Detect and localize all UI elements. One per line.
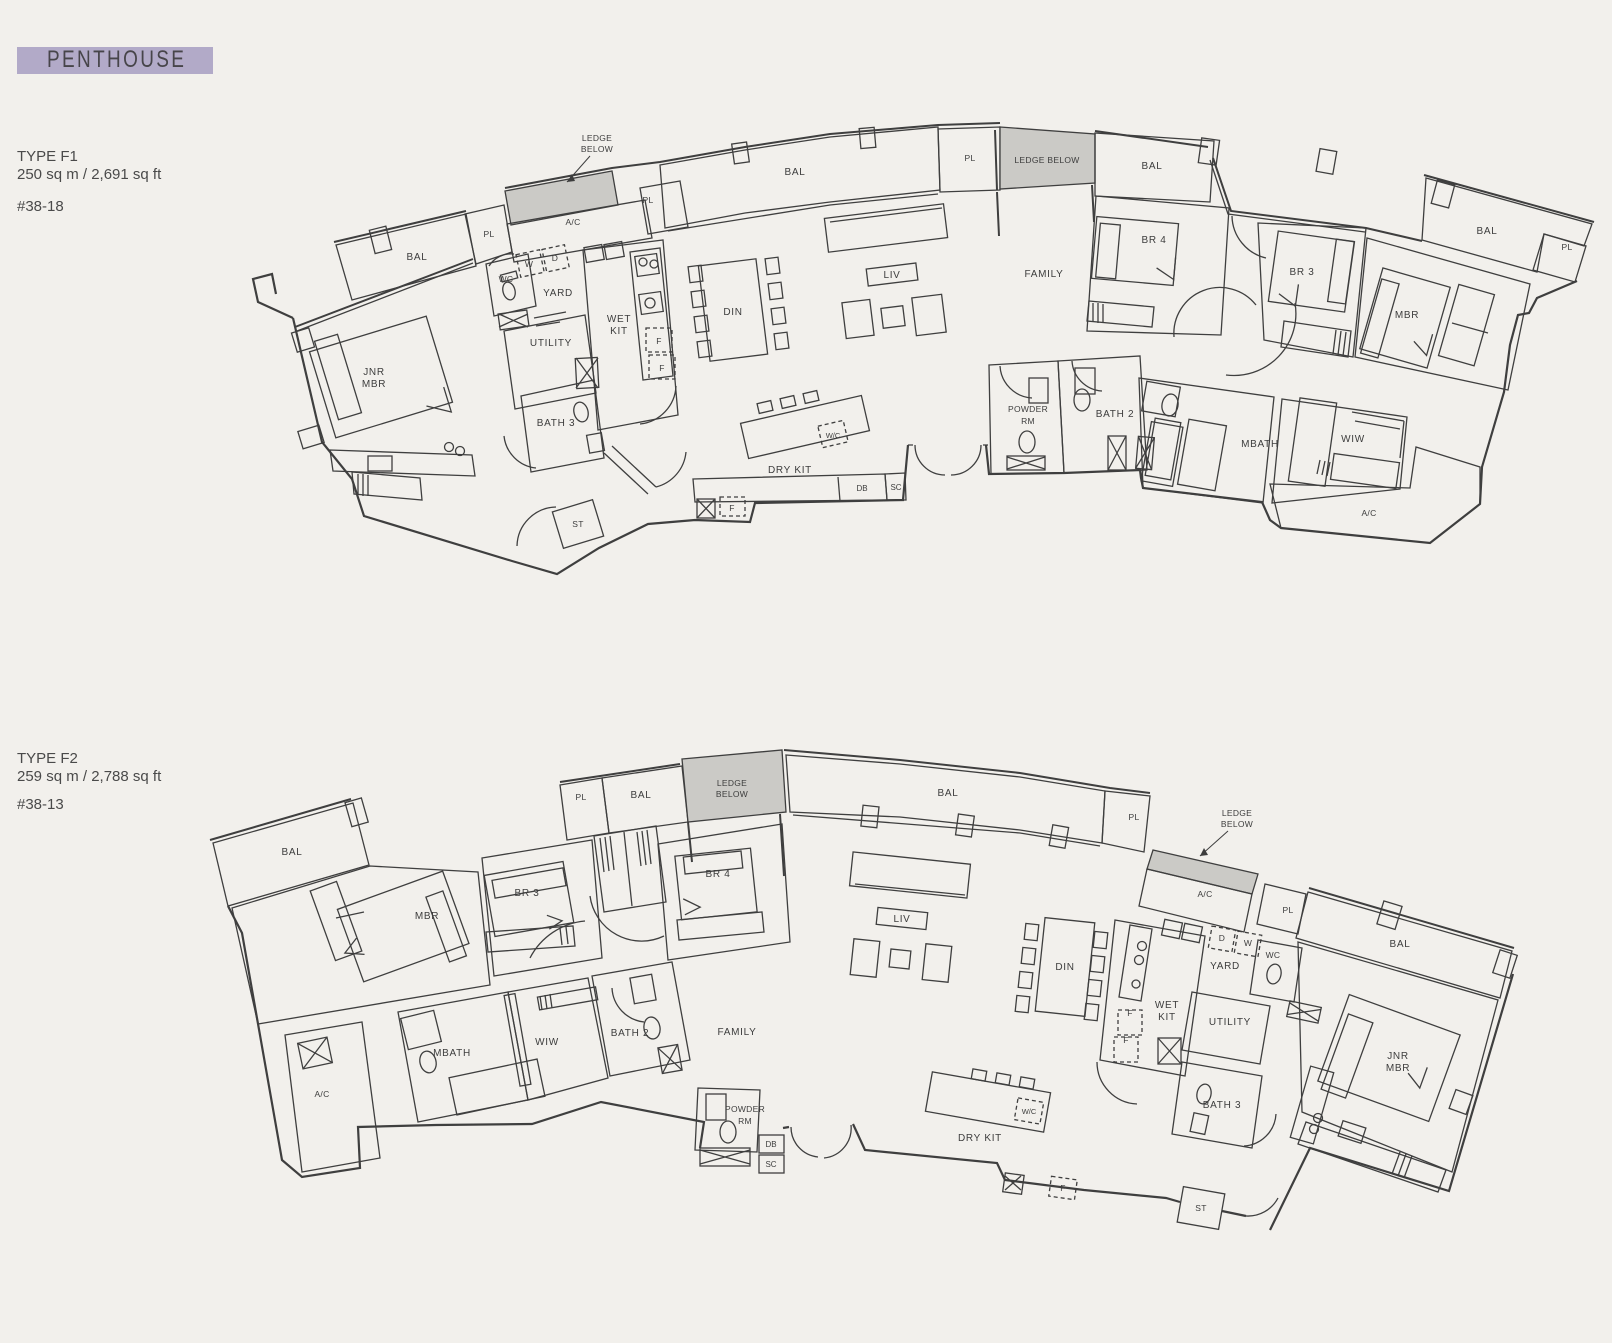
svg-text:UTILITY: UTILITY [1209, 1017, 1251, 1028]
svg-text:BR 3: BR 3 [1289, 267, 1314, 278]
svg-text:PL: PL [1129, 812, 1140, 822]
svg-text:LEDGE: LEDGE [717, 778, 747, 788]
svg-text:BAL: BAL [281, 847, 302, 858]
svg-text:YARD: YARD [1210, 961, 1240, 972]
svg-text:PL: PL [965, 153, 976, 163]
svg-text:LIV: LIV [893, 914, 910, 925]
svg-text:BAL: BAL [937, 788, 958, 799]
svg-text:BR 4: BR 4 [1141, 235, 1166, 246]
svg-text:ST: ST [572, 519, 583, 529]
svg-text:WC: WC [499, 274, 514, 284]
svg-text:BAL: BAL [1389, 939, 1410, 950]
svg-text:D: D [1219, 933, 1225, 943]
svg-text:PL: PL [643, 195, 654, 205]
svg-text:MBR: MBR [1395, 310, 1419, 321]
svg-text:SC: SC [890, 483, 901, 492]
svg-text:W: W [525, 259, 533, 269]
svg-text:PL: PL [1283, 905, 1294, 915]
svg-text:MBATH: MBATH [433, 1048, 471, 1059]
svg-text:BATH 2: BATH 2 [1096, 409, 1134, 420]
svg-text:DRY KIT: DRY KIT [768, 465, 812, 476]
svg-text:MBR: MBR [1386, 1063, 1410, 1074]
svg-text:W/C: W/C [826, 431, 841, 440]
svg-text:BATH 3: BATH 3 [537, 418, 575, 429]
svg-text:DIN: DIN [1055, 962, 1074, 973]
svg-text:BR 3: BR 3 [514, 888, 539, 899]
svg-text:BELOW: BELOW [1221, 819, 1253, 829]
svg-text:BATH 2: BATH 2 [611, 1028, 649, 1039]
svg-text:PL: PL [484, 229, 495, 239]
svg-text:JNR: JNR [363, 367, 385, 378]
svg-text:BAL: BAL [630, 790, 651, 801]
svg-text:D: D [552, 253, 558, 263]
svg-text:F: F [659, 363, 665, 373]
svg-text:POWDER: POWDER [1008, 404, 1048, 414]
svg-text:RM: RM [1021, 416, 1035, 426]
svg-text:KIT: KIT [610, 326, 628, 337]
svg-text:A/C: A/C [1197, 889, 1212, 899]
svg-text:RM: RM [738, 1116, 752, 1126]
svg-text:LEDGE: LEDGE [582, 133, 612, 143]
svg-text:FAMILY: FAMILY [717, 1027, 756, 1038]
svg-text:LEDGE BELOW: LEDGE BELOW [1014, 155, 1079, 165]
svg-text:LEDGE: LEDGE [1222, 808, 1252, 818]
svg-text:KIT: KIT [1158, 1012, 1176, 1023]
svg-text:DRY KIT: DRY KIT [958, 1133, 1002, 1144]
svg-text:DB: DB [856, 484, 867, 493]
svg-text:BELOW: BELOW [716, 789, 748, 799]
svg-text:MBR: MBR [362, 379, 386, 390]
svg-text:BATH 3: BATH 3 [1203, 1100, 1241, 1111]
svg-text:PL: PL [576, 792, 587, 802]
svg-text:JNR: JNR [1387, 1051, 1409, 1062]
svg-text:W/C: W/C [1022, 1107, 1037, 1116]
svg-text:WIW: WIW [535, 1037, 559, 1048]
svg-text:F: F [656, 336, 662, 346]
svg-text:MBATH: MBATH [1241, 439, 1279, 450]
svg-text:BAL: BAL [1476, 226, 1497, 237]
svg-text:F: F [1123, 1035, 1129, 1045]
svg-text:WET: WET [607, 314, 631, 325]
svg-text:MBR: MBR [415, 911, 439, 922]
svg-text:A/C: A/C [314, 1089, 329, 1099]
svg-text:A/C: A/C [565, 217, 580, 227]
svg-text:BAL: BAL [1141, 161, 1162, 172]
svg-text:WC: WC [1266, 950, 1281, 960]
svg-text:YARD: YARD [543, 288, 573, 299]
svg-text:DB: DB [765, 1140, 776, 1149]
svg-text:FAMILY: FAMILY [1024, 269, 1063, 280]
svg-text:POWDER: POWDER [725, 1104, 765, 1114]
svg-text:WIW: WIW [1341, 434, 1365, 445]
svg-text:BELOW: BELOW [581, 144, 613, 154]
svg-text:F: F [1060, 1183, 1066, 1193]
svg-text:LIV: LIV [883, 270, 900, 281]
svg-text:W: W [1244, 938, 1252, 948]
svg-text:A/C: A/C [1361, 508, 1376, 518]
svg-text:BAL: BAL [784, 167, 805, 178]
svg-text:BAL: BAL [406, 252, 427, 263]
svg-text:SC: SC [765, 1160, 776, 1169]
svg-text:F: F [729, 503, 735, 513]
svg-text:F: F [1127, 1008, 1133, 1018]
svg-text:DIN: DIN [723, 307, 742, 318]
svg-text:WET: WET [1155, 1000, 1179, 1011]
svg-text:PL: PL [1562, 242, 1573, 252]
svg-text:ST: ST [1195, 1203, 1206, 1213]
svg-text:BR 4: BR 4 [705, 869, 730, 880]
svg-text:UTILITY: UTILITY [530, 338, 572, 349]
